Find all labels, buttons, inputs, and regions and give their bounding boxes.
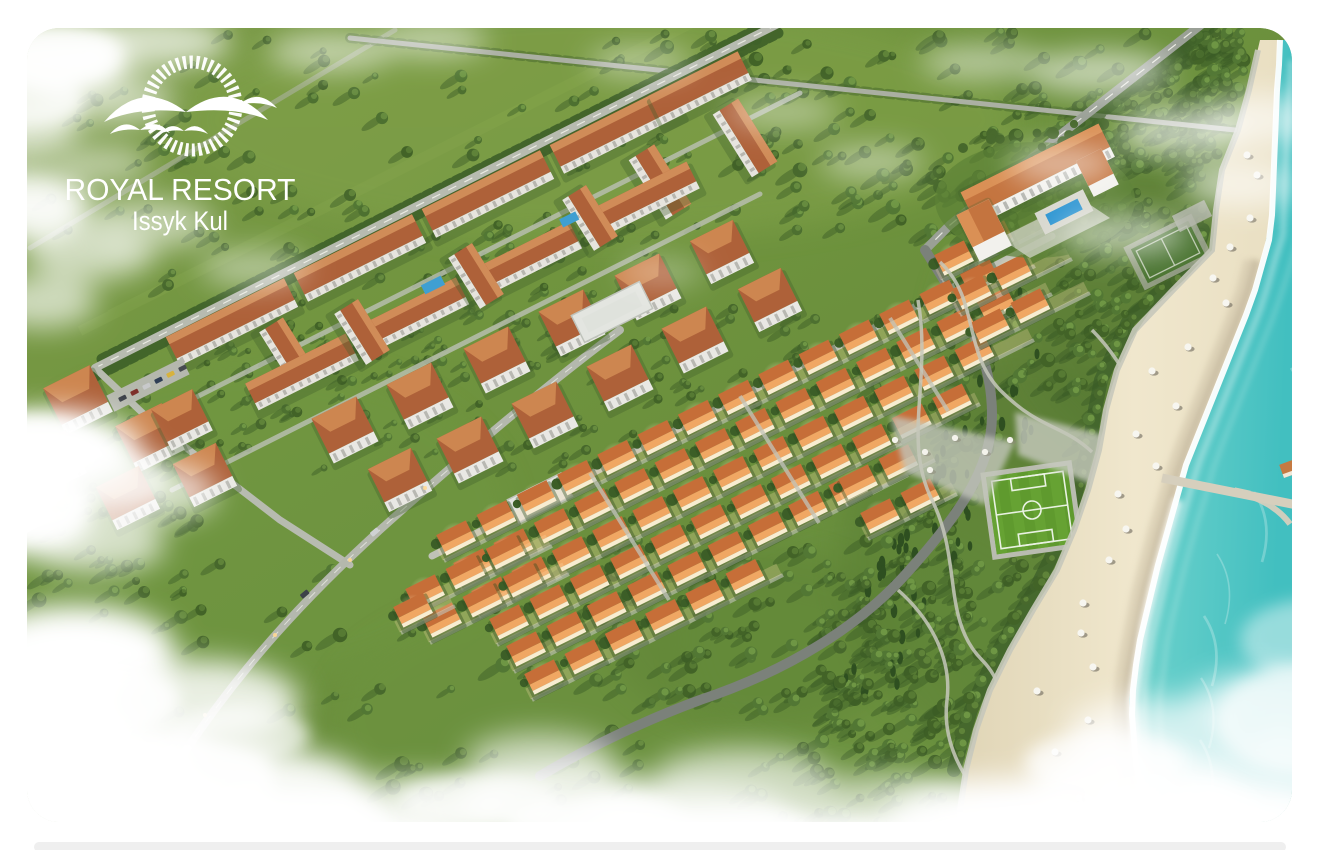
svg-text:Issyk Kul: Issyk Kul	[132, 206, 228, 236]
svg-text:ROYAL RESORT: ROYAL RESORT	[65, 172, 296, 207]
